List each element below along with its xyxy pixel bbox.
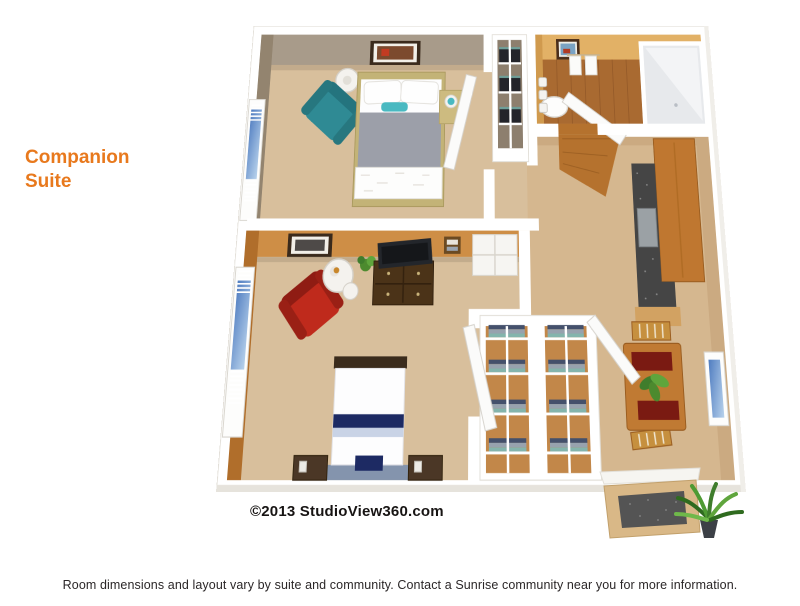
wardrobe-white — [473, 235, 518, 276]
bathroom — [535, 35, 707, 128]
doorway-entry — [558, 124, 598, 135]
exterior-decor — [596, 466, 746, 558]
shower — [641, 44, 708, 128]
hall-nook-floor — [494, 162, 527, 219]
closets-bottom — [480, 315, 602, 480]
bed-bedroom1 — [352, 72, 445, 206]
nightstand-right-bedroom2 — [408, 456, 442, 481]
floorplan-3d — [216, 26, 746, 492]
copyright-text: ©2013 StudioView360.com — [250, 503, 444, 520]
vent-box — [604, 480, 700, 538]
dresser-tv — [373, 238, 434, 305]
closet-left — [486, 325, 530, 473]
nightstand-left-bedroom2 — [293, 456, 328, 481]
page-title: Companion Suite — [25, 146, 175, 194]
linen-closet — [492, 35, 528, 162]
bed-bedroom2 — [325, 356, 411, 480]
doorway-nook — [527, 166, 539, 219]
bedroom-1 — [240, 35, 484, 221]
floorplan-svg — [216, 26, 746, 492]
disclaimer-caption: Room dimensions and layout vary by suite… — [0, 578, 800, 592]
closet-right — [545, 325, 592, 473]
wall-art-bedroom1 — [370, 41, 421, 65]
page: Companion Suite — [0, 0, 800, 606]
